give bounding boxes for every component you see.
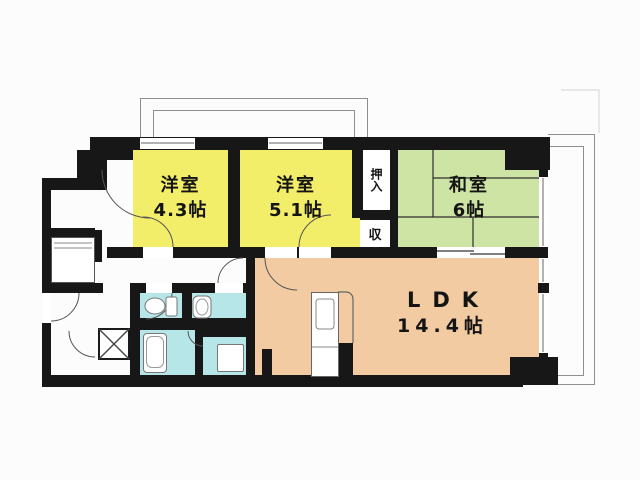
closet-oshiire: 押入 — [363, 150, 390, 210]
wall-bath-changing-divider — [195, 337, 203, 375]
label-western1-size: 4.3帖 — [154, 199, 208, 223]
label-ldk-name: LDK — [395, 286, 490, 314]
wall-ldk-left — [246, 258, 255, 375]
wall-divider-oshiire-left — [352, 150, 363, 218]
wall-oshiire-right — [390, 150, 398, 247]
bathtub — [143, 333, 167, 373]
wall-step-top-left-h — [42, 178, 107, 190]
wall-oshiire-storage-divider — [360, 210, 390, 220]
hall-closet — [51, 237, 95, 283]
balcony-top-inner — [153, 110, 355, 140]
window-ldk-lower — [539, 293, 548, 353]
door-arc-washroom — [218, 258, 243, 283]
wall-bottom — [42, 375, 523, 387]
door-arc-shaft — [69, 331, 95, 357]
opening-entrance — [42, 293, 51, 323]
opening-sliding-japanese — [437, 247, 505, 258]
label-western2: 洋室 5.1帖 — [240, 150, 352, 247]
wall-pillar-bottom-right — [510, 357, 558, 385]
window-ldk-upper — [539, 258, 548, 283]
label-japanese-size: 6帖 — [453, 199, 486, 223]
label-ldk: LDK 14.4帖 — [345, 281, 540, 345]
bathtub-inner — [146, 336, 164, 368]
room-washbasin — [192, 293, 246, 318]
label-ldk-size: 14.4帖 — [397, 314, 488, 340]
wall-entrance-right — [130, 283, 140, 375]
opening-door-western1 — [143, 247, 173, 258]
window-western1 — [140, 138, 195, 149]
wall-under-toilet — [140, 318, 200, 330]
balcony-right-inner — [548, 146, 584, 376]
label-western2-size: 5.1帖 — [269, 199, 323, 223]
washing-machine-pan — [217, 344, 244, 372]
closet-storage: 収 — [360, 220, 390, 247]
room-toilet — [140, 293, 182, 318]
floorplan: 押入 収 — [0, 0, 640, 480]
opening-door-western2 — [299, 247, 331, 258]
label-western2-name: 洋室 — [276, 174, 316, 198]
door-arc-entrance — [51, 293, 79, 321]
window-western2 — [268, 138, 323, 149]
faint-outline-extension — [561, 90, 599, 133]
closet-storage-label: 収 — [368, 224, 381, 243]
kitchen-counter — [311, 292, 339, 377]
window-japanese — [539, 177, 548, 247]
label-japanese: 和室 6帖 — [398, 150, 540, 247]
pipe-shaft-box — [98, 328, 130, 360]
wall-right-seg-lower — [539, 353, 548, 359]
label-western1: 洋室 4.3帖 — [133, 150, 228, 247]
label-western1-name: 洋室 — [161, 174, 201, 198]
wall-toilet-basin-divider — [182, 293, 192, 318]
wall-under-closet — [42, 283, 103, 293]
wall-ldk-left-stub — [262, 349, 272, 377]
wall-divider-western-rooms — [228, 150, 240, 247]
label-japanese-name: 和室 — [449, 174, 489, 198]
opening-door-toilet — [146, 283, 172, 293]
opening-door-washroom — [215, 283, 243, 293]
opening-door-ldk — [265, 247, 297, 258]
